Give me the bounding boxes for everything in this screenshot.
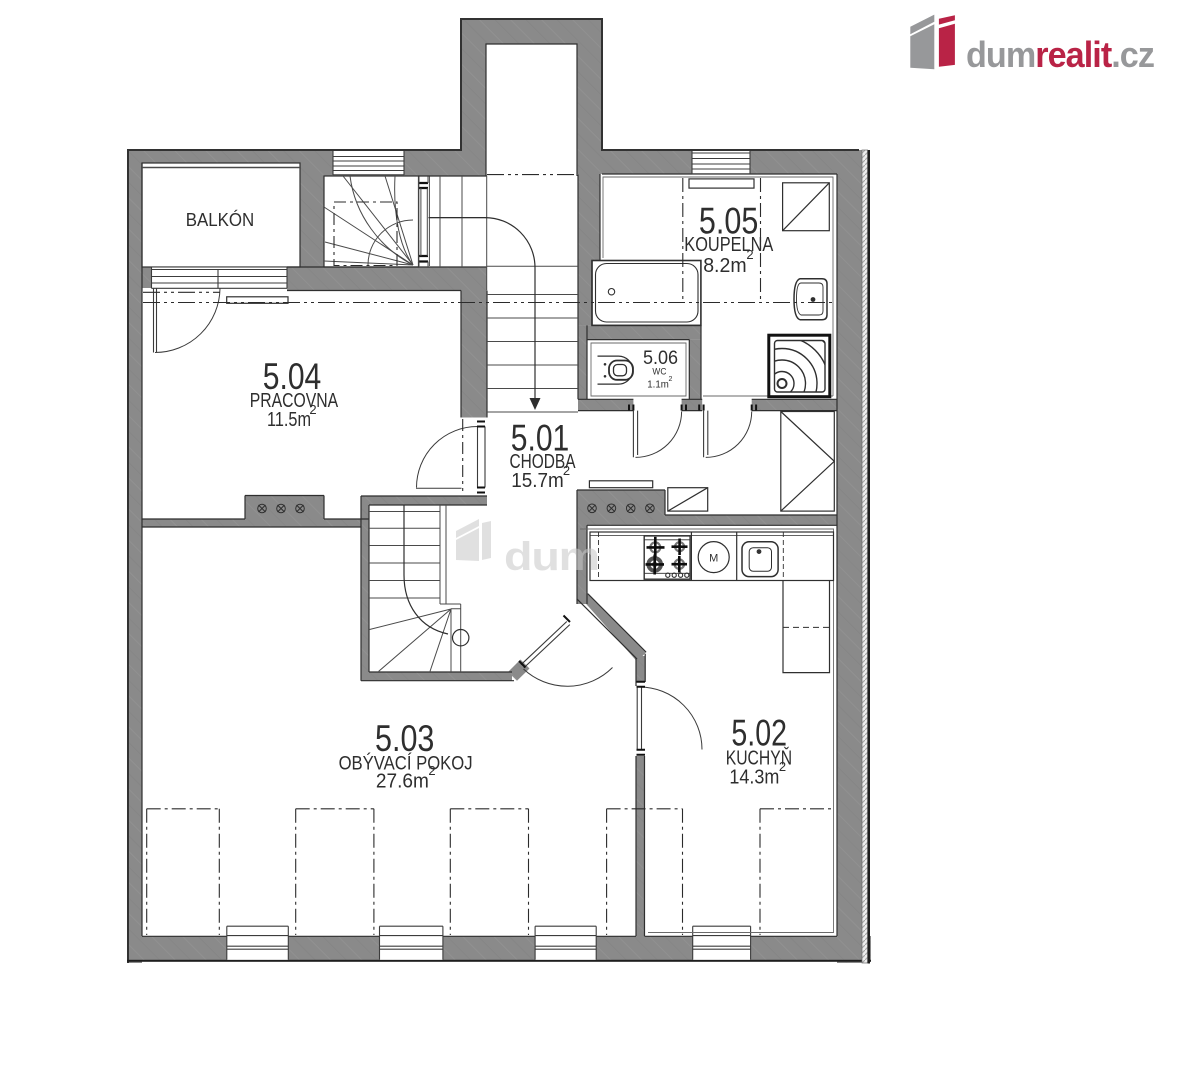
svg-text:2: 2 — [669, 376, 673, 383]
svg-text:WC: WC — [652, 366, 666, 376]
svg-text:dumrealit.cz: dumrealit.cz — [966, 34, 1154, 75]
svg-text:2: 2 — [309, 402, 316, 417]
svg-text:11.5m: 11.5m — [267, 409, 311, 431]
svg-text:M: M — [709, 553, 718, 565]
svg-text:14.3m: 14.3m — [729, 767, 779, 789]
svg-text:2: 2 — [563, 463, 570, 478]
svg-text:2: 2 — [779, 759, 786, 774]
svg-text:2: 2 — [428, 763, 435, 778]
svg-text:27.6m: 27.6m — [376, 771, 429, 793]
svg-text:15.7m: 15.7m — [511, 470, 564, 492]
svg-text:2: 2 — [746, 247, 753, 262]
svg-text:KOUPELNA: KOUPELNA — [684, 233, 773, 256]
svg-text:8.2m: 8.2m — [703, 255, 746, 277]
svg-text:BALKÓN: BALKÓN — [186, 209, 255, 230]
svg-text:dum: dum — [504, 535, 599, 579]
svg-text:1.1m: 1.1m — [647, 378, 669, 390]
